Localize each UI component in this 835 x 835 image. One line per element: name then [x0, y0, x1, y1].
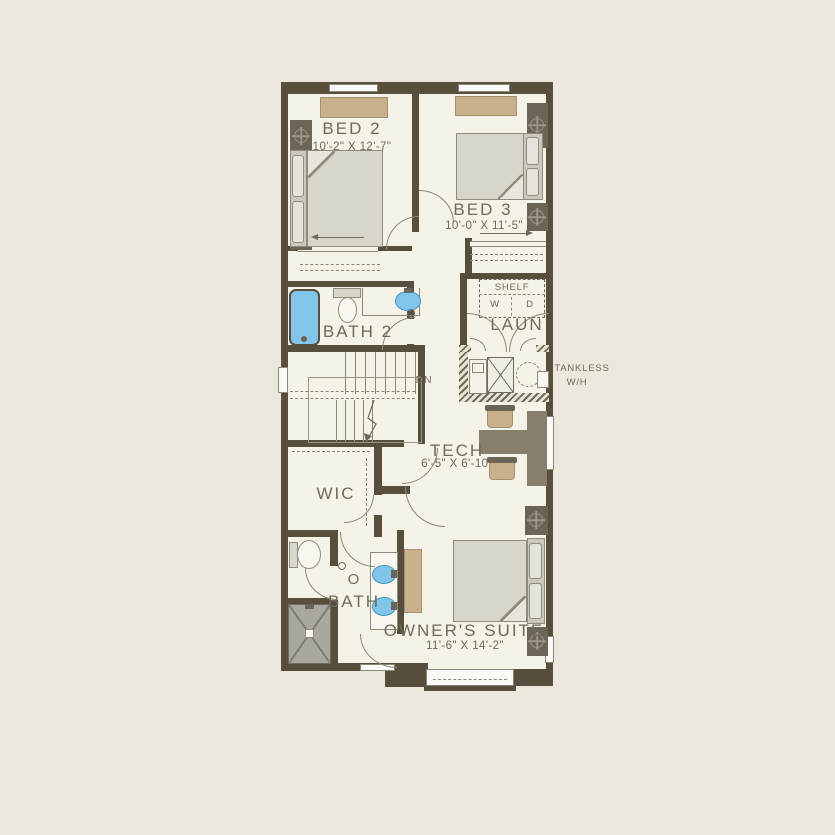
wall-south-step [385, 671, 428, 687]
stairs-down-arrow [356, 398, 382, 444]
dresser-owner [404, 549, 422, 613]
faucet-owner-1 [391, 570, 397, 578]
shower-drain [305, 629, 314, 638]
desk-arm [479, 430, 527, 454]
stairs-down-label: DN [416, 374, 433, 386]
faucet-bath2 [404, 288, 412, 293]
light-fixture-icon [529, 513, 543, 527]
floor-plan-canvas: BED 2 10'-2" X 12'-7" BED 3 10'-0" X 11'… [0, 0, 835, 835]
bed3-pillow [526, 137, 539, 165]
window-stairs-left [278, 367, 288, 393]
closet2-rod-dash [300, 264, 380, 265]
bed3-dims: 10'-0" X 11'-5" [445, 220, 523, 232]
desk-vertical [527, 411, 547, 486]
slider-arrow-bed2 [318, 237, 364, 238]
owners-bath-label: BATH [328, 592, 380, 612]
slider-arrowhead-bed2 [311, 234, 318, 240]
wall-bed-divider [412, 94, 419, 232]
bed2-dims: 10'-2" X 12'-7" [313, 141, 392, 153]
wall-wic-right-stub [374, 515, 382, 537]
bed2-blanket-fold [308, 151, 335, 178]
owners-suite-dims: 11'-6" X 14'-2" [426, 640, 504, 652]
toilet-owner-bowl [297, 540, 321, 569]
owner-bed-pillow [529, 583, 542, 619]
tankless-water-heater [537, 371, 549, 388]
door-knob-circle [338, 562, 346, 570]
light-fixture-icon [530, 118, 544, 132]
slider-arrowhead-bed3 [526, 230, 533, 236]
door-knob-circle [407, 309, 415, 317]
stair-rail-dash [290, 398, 415, 399]
wall-obath-top [281, 530, 337, 537]
desk-chair [487, 408, 513, 428]
sink-bath2 [395, 291, 421, 311]
light-fixture-icon [294, 129, 308, 143]
bed2-label: BED 2 [322, 119, 381, 139]
owner-bed-pillow [529, 543, 542, 579]
wall-wic-right [374, 445, 382, 495]
wic-rod-dash-vertical [366, 458, 367, 526]
wall-laundry-left [460, 273, 467, 353]
closet2-rod-dash [300, 270, 380, 271]
wic-rod-dash [292, 451, 370, 452]
tankless-label-line1: TANKLESS [554, 363, 609, 374]
window-bed2 [329, 84, 378, 92]
tankless-label-line2: W/H [567, 377, 588, 388]
wall-utility-bottom [459, 393, 549, 402]
bed2-pillow [292, 201, 304, 243]
utility-cabinet-sink [472, 363, 484, 373]
stair-rail-dash [290, 391, 415, 392]
wall-obath-right [397, 530, 404, 634]
tech-dims: 6'-5" X 6'-10" [421, 458, 493, 470]
bath2-label: BATH 2 [323, 322, 393, 342]
bathtub-drain [301, 336, 307, 342]
bed3-label: BED 3 [453, 200, 512, 220]
dresser-bed3 [455, 96, 517, 116]
wall-south-right [510, 669, 553, 686]
owners-suite-label: OWNER'S SUITE [384, 621, 545, 641]
hvac-unit [487, 357, 514, 393]
bed2-pillow [292, 155, 304, 197]
faucet-owner-2 [391, 602, 397, 610]
sliding-door-bed3-closet [470, 241, 546, 247]
laundry-shelf-divider [479, 294, 545, 295]
closet3-rod-dash [470, 260, 543, 261]
desk-chair-back [485, 405, 515, 411]
bay-window-suite [426, 669, 514, 686]
washer-label: W [490, 299, 500, 310]
closet3-rod-dash [470, 254, 543, 255]
window-bed3 [458, 84, 510, 92]
laundry-label: LAUN [490, 315, 543, 335]
shower-head [305, 604, 314, 609]
owner-bed-blanket-fold [500, 596, 526, 621]
toilet2-bowl [338, 297, 357, 323]
wall-bath-south [281, 663, 428, 671]
wall-bath2-top [288, 281, 412, 287]
bay-window-sill-line [433, 679, 507, 680]
light-fixture-icon [530, 210, 544, 224]
dresser-bed2 [320, 97, 388, 118]
dryer-label: D [526, 299, 534, 310]
wall-toilet-stub [330, 530, 338, 566]
bed3-pillow [526, 168, 539, 196]
shelf-label: SHELF [495, 282, 530, 293]
wic-label: WIC [316, 484, 355, 504]
washer-dryer-divider [511, 297, 512, 316]
slider-arrow-bed3 [480, 233, 526, 234]
wall-outer-top [281, 82, 553, 94]
owners-bath-prefix: O [348, 571, 361, 588]
bed3-blanket-fold [498, 174, 523, 199]
wall-utility-left [459, 351, 468, 397]
